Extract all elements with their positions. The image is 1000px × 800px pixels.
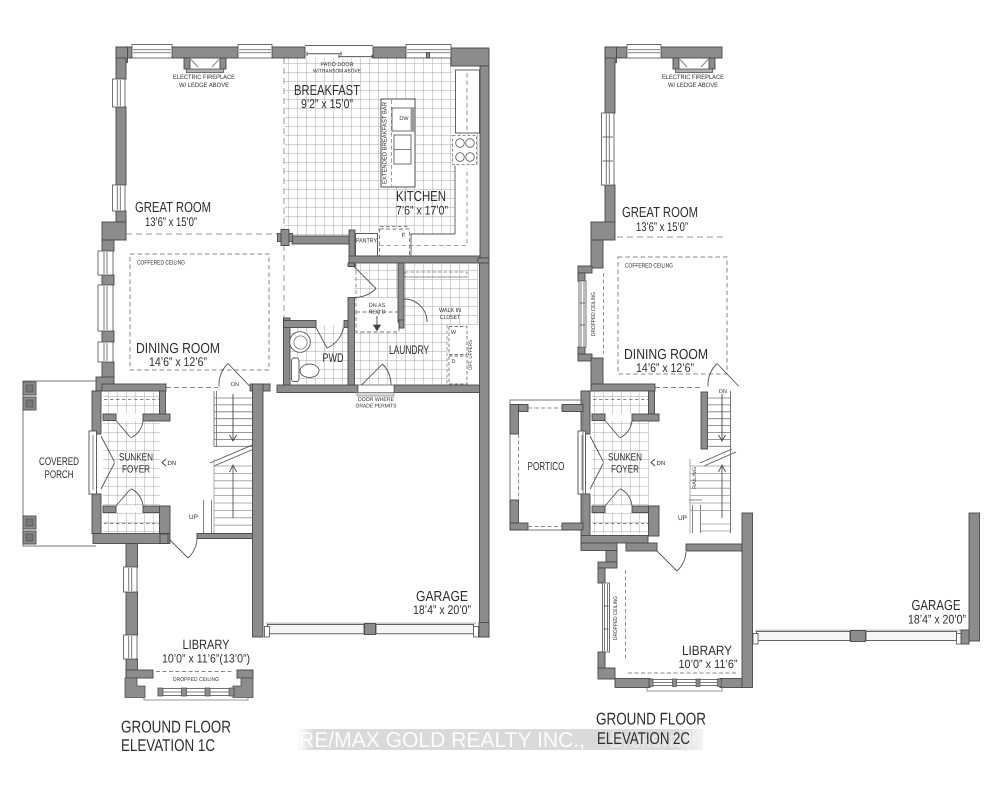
svg-text:UP: UP bbox=[189, 514, 198, 521]
svg-text:13’6” x 15’0”: 13’6” x 15’0” bbox=[636, 220, 688, 234]
svg-text:GRADE PERMITS: GRADE PERMITS bbox=[356, 404, 397, 410]
svg-text:10’0” x 11’6”: 10’0” x 11’6” bbox=[679, 657, 738, 671]
svg-text:18’4” x 20’0”: 18’4” x 20’0” bbox=[908, 613, 966, 627]
svg-text:RAILING: RAILING bbox=[692, 467, 698, 489]
svg-text:GREAT ROOM: GREAT ROOM bbox=[622, 205, 698, 221]
svg-text:SUNKEN: SUNKEN bbox=[608, 452, 642, 464]
svg-text:DN AS: DN AS bbox=[369, 303, 386, 309]
svg-text:GROUND FLOOR: GROUND FLOOR bbox=[121, 718, 231, 737]
svg-text:REQ’D: REQ’D bbox=[368, 310, 385, 316]
svg-text:DROPPED CEILING: DROPPED CEILING bbox=[613, 596, 619, 640]
svg-text:W/ LEDGE ABOVE: W/ LEDGE ABOVE bbox=[179, 82, 229, 89]
svg-text:10’0” x 11’6”(13’0”): 10’0” x 11’6”(13’0”) bbox=[162, 652, 250, 666]
svg-text:18’4” x 20’0”: 18’4” x 20’0” bbox=[413, 603, 471, 617]
svg-text:F: F bbox=[402, 232, 406, 239]
svg-text:ELECTRIC FIREPLACE: ELECTRIC FIREPLACE bbox=[662, 74, 724, 81]
svg-text:FOYER: FOYER bbox=[122, 464, 150, 476]
svg-text:UP: UP bbox=[678, 515, 687, 522]
svg-text:LAUNDRY: LAUNDRY bbox=[389, 343, 429, 357]
svg-text:DN: DN bbox=[231, 382, 239, 388]
svg-text:FOYER: FOYER bbox=[611, 464, 639, 476]
svg-text:LIBRARY: LIBRARY bbox=[183, 637, 230, 652]
svg-text:9’2” x 15’0”: 9’2” x 15’0” bbox=[301, 97, 353, 111]
svg-text:ELEVATION 1C: ELEVATION 1C bbox=[121, 736, 215, 755]
svg-text:7’6” x 17’0”: 7’6” x 17’0” bbox=[396, 204, 448, 218]
svg-text:13’6” x 15’0”: 13’6” x 15’0” bbox=[145, 215, 197, 229]
svg-text:ELEVATION 2C: ELEVATION 2C bbox=[597, 729, 690, 748]
svg-text:PANTRY: PANTRY bbox=[356, 238, 377, 245]
svg-text:WALK IN: WALK IN bbox=[439, 307, 461, 314]
svg-text:W/TRANSOM ABOVE: W/TRANSOM ABOVE bbox=[313, 69, 361, 75]
svg-text:PWD: PWD bbox=[323, 351, 344, 365]
svg-text:OPT. UPPERS: OPT. UPPERS bbox=[468, 340, 474, 370]
svg-text:DROPPED CEILING: DROPPED CEILING bbox=[591, 292, 597, 336]
svg-text:DN: DN bbox=[657, 460, 666, 467]
svg-text:D: D bbox=[452, 359, 456, 365]
svg-text:GROUND FLOOR: GROUND FLOOR bbox=[596, 710, 706, 729]
svg-text:W/ LEDGE ABOVE: W/ LEDGE ABOVE bbox=[668, 82, 718, 89]
svg-text:14’6” x 12’6”: 14’6” x 12’6” bbox=[149, 355, 207, 369]
svg-text:COFFERED CEILING: COFFERED CEILING bbox=[625, 263, 673, 270]
svg-text:RE/MAX GOLD REALTY INC.,: RE/MAX GOLD REALTY INC., bbox=[299, 728, 585, 752]
svg-text:DROPPED CEILING: DROPPED CEILING bbox=[173, 677, 219, 683]
svg-text:14’6” x 12’6”: 14’6” x 12’6” bbox=[636, 361, 694, 375]
svg-text:CLOSET: CLOSET bbox=[440, 314, 460, 321]
svg-text:DOOR WHERE: DOOR WHERE bbox=[358, 397, 394, 403]
svg-text:PATIO DOOR: PATIO DOOR bbox=[321, 62, 354, 68]
svg-text:W: W bbox=[451, 330, 457, 336]
svg-text:DW: DW bbox=[399, 116, 409, 122]
svg-text:COVERED: COVERED bbox=[39, 456, 79, 468]
svg-text:PORCH: PORCH bbox=[45, 469, 74, 481]
svg-text:PORTICO: PORTICO bbox=[528, 461, 565, 473]
svg-text:ELECTRIC FIREPLACE: ELECTRIC FIREPLACE bbox=[173, 74, 235, 81]
svg-text:EXTENDED BREAKFAST BAR: EXTENDED BREAKFAST BAR bbox=[382, 102, 389, 184]
svg-text:GREAT ROOM: GREAT ROOM bbox=[135, 200, 211, 216]
svg-text:COFFERED CEILING: COFFERED CEILING bbox=[137, 260, 185, 267]
svg-text:SUNKEN: SUNKEN bbox=[119, 452, 153, 464]
svg-text:DN: DN bbox=[719, 389, 727, 395]
svg-text:LIBRARY: LIBRARY bbox=[682, 643, 732, 658]
svg-text:DN: DN bbox=[168, 460, 177, 467]
